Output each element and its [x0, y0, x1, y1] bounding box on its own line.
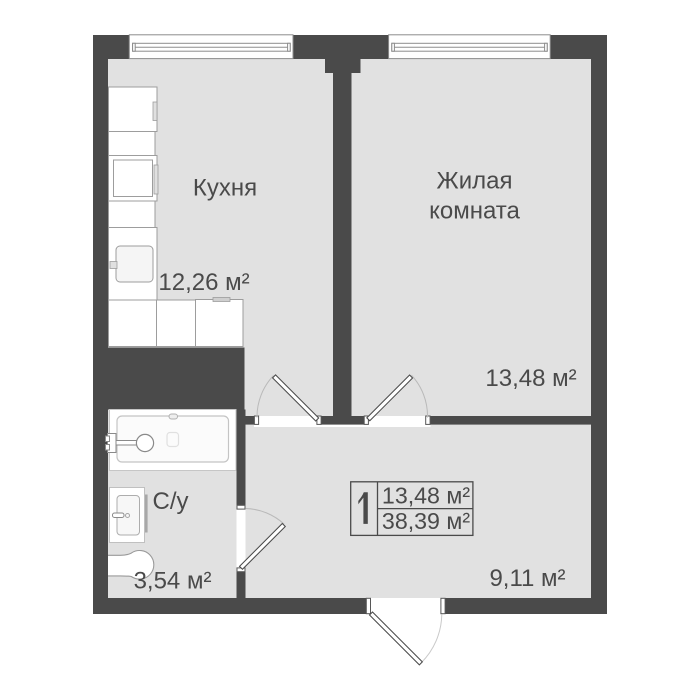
svg-text:Кухня: Кухня — [193, 175, 257, 202]
svg-text:9,11 м²: 9,11 м² — [489, 565, 565, 592]
svg-text:13,48 м²: 13,48 м² — [485, 365, 576, 392]
svg-text:С/у: С/у — [153, 488, 189, 515]
svg-text:Жилая: Жилая — [437, 168, 513, 195]
svg-text:3,54 м²: 3,54 м² — [134, 568, 212, 595]
svg-text:12,26 м²: 12,26 м² — [158, 269, 249, 296]
svg-text:комната: комната — [429, 198, 520, 225]
svg-text:38,39 м²: 38,39 м² — [382, 508, 470, 534]
svg-text:13,48 м²: 13,48 м² — [382, 483, 470, 509]
